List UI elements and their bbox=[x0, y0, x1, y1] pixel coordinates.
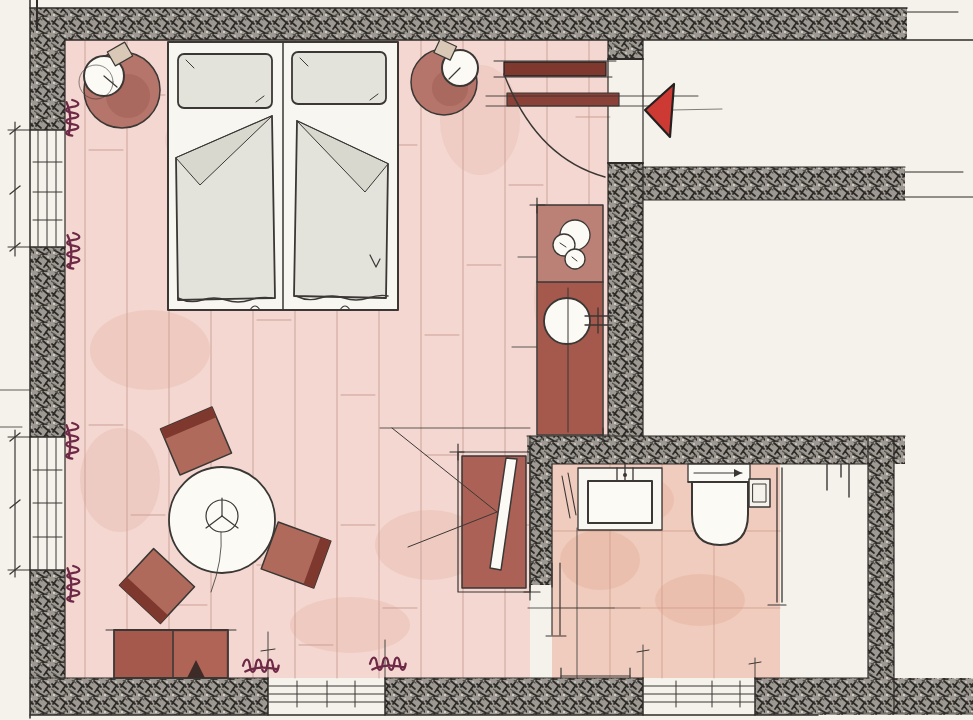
wall-corridor bbox=[643, 167, 905, 200]
entrance-door-leaf bbox=[507, 93, 619, 106]
bathroom-sink-basin bbox=[588, 481, 652, 523]
floor-shading-blotch bbox=[560, 530, 640, 590]
floor-shading-blotch bbox=[90, 310, 210, 390]
wall-left bbox=[30, 570, 65, 678]
wall-east bbox=[608, 163, 643, 436]
paper-holder bbox=[749, 479, 770, 507]
floor-shading-blotch bbox=[80, 428, 160, 532]
sink-drain-dot bbox=[623, 473, 627, 477]
wall-top bbox=[30, 8, 907, 40]
round-basin bbox=[544, 298, 590, 344]
wall-entrance-stub bbox=[608, 40, 643, 59]
adjacent-room-floor bbox=[780, 464, 868, 678]
pillow-left bbox=[178, 54, 272, 108]
dining-table bbox=[169, 467, 275, 573]
wall-bottom bbox=[755, 678, 973, 715]
wall-bathroom-west bbox=[530, 464, 552, 585]
wall-bathroom-north bbox=[527, 436, 905, 464]
toilet-bowl bbox=[692, 482, 748, 545]
floor-plan bbox=[0, 0, 973, 720]
wall-right bbox=[868, 436, 894, 715]
wall-bottom bbox=[30, 678, 268, 715]
pillow-right bbox=[292, 52, 386, 104]
wall-left bbox=[30, 247, 65, 437]
floor-shading-blotch bbox=[655, 574, 745, 626]
wall-bottom bbox=[385, 678, 643, 715]
wall-left bbox=[30, 40, 65, 130]
floor-plan-canvas bbox=[0, 0, 973, 720]
coat-shelf bbox=[504, 62, 606, 76]
